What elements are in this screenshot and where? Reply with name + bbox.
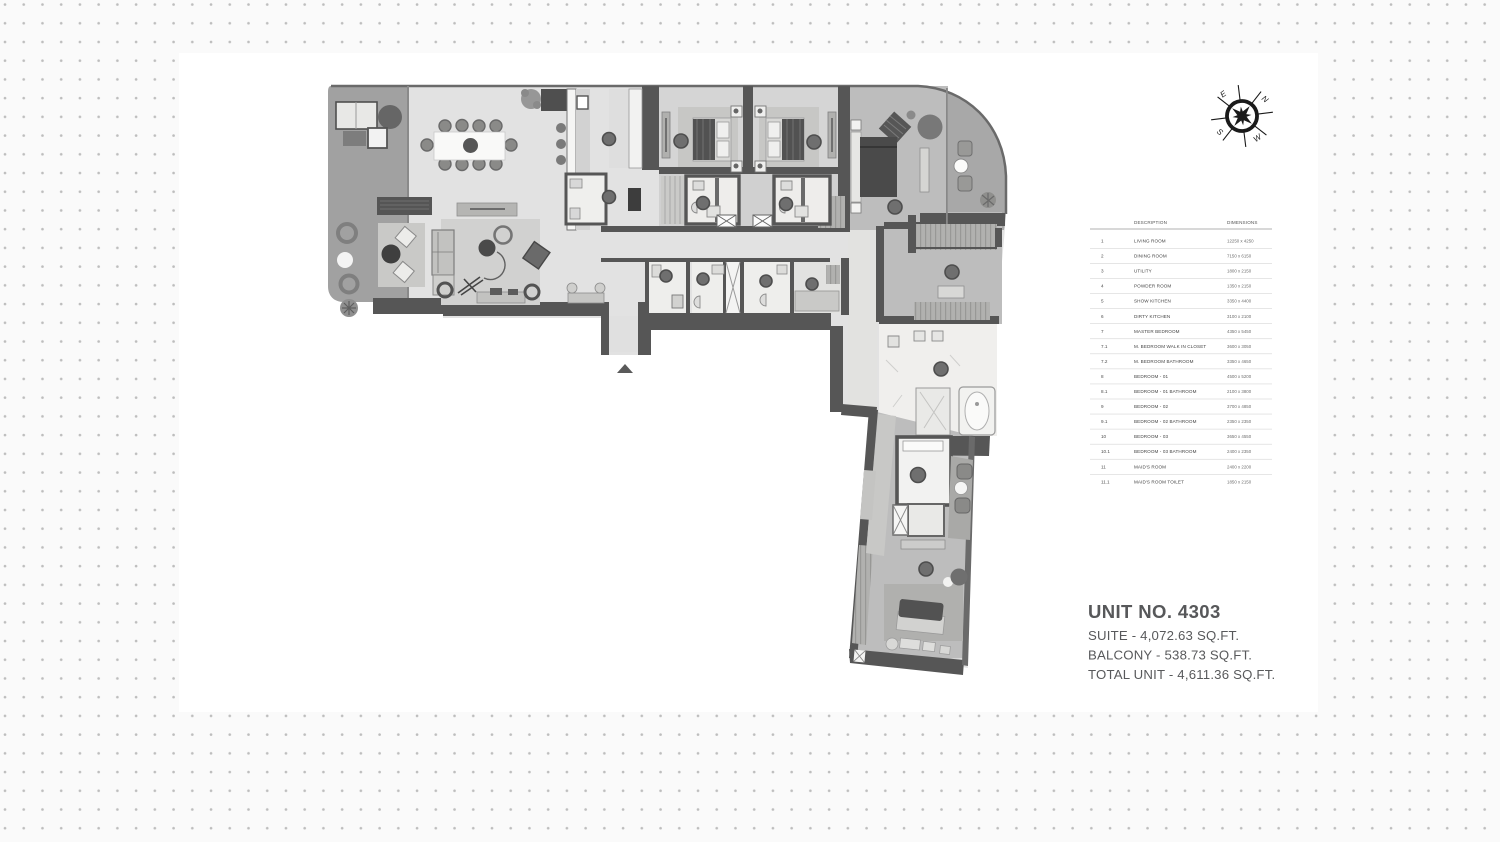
svg-text:7.2: 7.2 (1101, 359, 1108, 364)
svg-text:2400 x 2350: 2400 x 2350 (1227, 449, 1252, 454)
svg-text:BEDROOM - 02: BEDROOM - 02 (1134, 404, 1168, 409)
svg-text:8: 8 (1101, 374, 1104, 379)
svg-text:DIRTY KITCHEN: DIRTY KITCHEN (1134, 314, 1170, 319)
svg-text:DESCRIPTION: DESCRIPTION (1134, 220, 1167, 225)
svg-text:3700 x 4850: 3700 x 4850 (1227, 404, 1252, 409)
svg-text:3350 x 4650: 3350 x 4650 (1227, 359, 1252, 364)
svg-text:LIVING ROOM: LIVING ROOM (1134, 239, 1166, 244)
svg-text:3: 3 (1101, 269, 1104, 274)
svg-text:POWDER ROOM: POWDER ROOM (1134, 284, 1171, 289)
svg-text:10.1: 10.1 (1101, 449, 1110, 454)
svg-text:6: 6 (1101, 314, 1104, 319)
svg-text:4500 x 5200: 4500 x 5200 (1227, 374, 1252, 379)
svg-text:11.1: 11.1 (1101, 479, 1110, 484)
svg-text:DIMENSIONS: DIMENSIONS (1227, 220, 1258, 225)
svg-text:MASTER BEDROOM: MASTER BEDROOM (1134, 329, 1180, 334)
svg-text:3100 x 2100: 3100 x 2100 (1227, 314, 1252, 319)
svg-text:2100 x 3800: 2100 x 3800 (1227, 389, 1252, 394)
svg-text:1: 1 (1101, 239, 1104, 244)
svg-text:3600 x 3050: 3600 x 3050 (1227, 344, 1252, 349)
svg-text:12250 x 4250: 12250 x 4250 (1227, 239, 1254, 244)
svg-text:BEDROOM - 01 BATHROOM: BEDROOM - 01 BATHROOM (1134, 389, 1197, 394)
svg-text:TOTAL UNIT - 4,611.36 SQ.FT.: TOTAL UNIT - 4,611.36 SQ.FT. (1088, 667, 1275, 682)
svg-text:BEDROOM - 03: BEDROOM - 03 (1134, 434, 1168, 439)
svg-text:3350 x 4400: 3350 x 4400 (1227, 299, 1252, 304)
svg-text:UNIT NO. 4303: UNIT NO. 4303 (1088, 601, 1221, 622)
svg-text:2350 x 2350: 2350 x 2350 (1227, 419, 1252, 424)
svg-text:M. BEDROOM BATHROOM: M. BEDROOM BATHROOM (1134, 359, 1194, 364)
svg-text:SUITE - 4,072.63 SQ.FT.: SUITE - 4,072.63 SQ.FT. (1088, 628, 1239, 643)
svg-text:M. BEDROOM WALK IN CLOSET: M. BEDROOM WALK IN CLOSET (1134, 344, 1206, 349)
svg-text:MAID'S ROOM: MAID'S ROOM (1134, 464, 1166, 469)
svg-text:4: 4 (1101, 284, 1104, 289)
svg-text:1350 x 2150: 1350 x 2150 (1227, 284, 1252, 289)
svg-text:3650 x 4550: 3650 x 4550 (1227, 434, 1252, 439)
svg-text:7: 7 (1101, 329, 1104, 334)
svg-text:5: 5 (1101, 299, 1104, 304)
svg-text:8.1: 8.1 (1101, 389, 1108, 394)
svg-text:MAID'S ROOM TOILET: MAID'S ROOM TOILET (1134, 479, 1184, 484)
svg-text:BEDROOM - 02 BATHROOM: BEDROOM - 02 BATHROOM (1134, 419, 1197, 424)
svg-text:2: 2 (1101, 254, 1104, 259)
svg-text:11: 11 (1101, 464, 1106, 469)
svg-text:DINING ROOM: DINING ROOM (1134, 254, 1167, 259)
svg-text:1800 x 2150: 1800 x 2150 (1227, 269, 1252, 274)
svg-text:7150 x 6150: 7150 x 6150 (1227, 254, 1252, 259)
svg-text:9.1: 9.1 (1101, 419, 1108, 424)
svg-text:4350 x 5450: 4350 x 5450 (1227, 329, 1252, 334)
svg-text:BALCONY - 538.73 SQ.FT.: BALCONY - 538.73 SQ.FT. (1088, 648, 1252, 663)
svg-text:2400 x 2200: 2400 x 2200 (1227, 464, 1252, 469)
svg-text:9: 9 (1101, 404, 1104, 409)
svg-text:BEDROOM - 03 BATHROOM: BEDROOM - 03 BATHROOM (1134, 449, 1197, 454)
svg-text:1850 x 2150: 1850 x 2150 (1227, 479, 1252, 484)
svg-text:7.1: 7.1 (1101, 344, 1108, 349)
svg-text:UTILITY: UTILITY (1134, 269, 1152, 274)
svg-text:BEDROOM - 01: BEDROOM - 01 (1134, 374, 1168, 379)
svg-text:SHOW KITCHEN: SHOW KITCHEN (1134, 299, 1171, 304)
svg-text:10: 10 (1101, 434, 1107, 439)
